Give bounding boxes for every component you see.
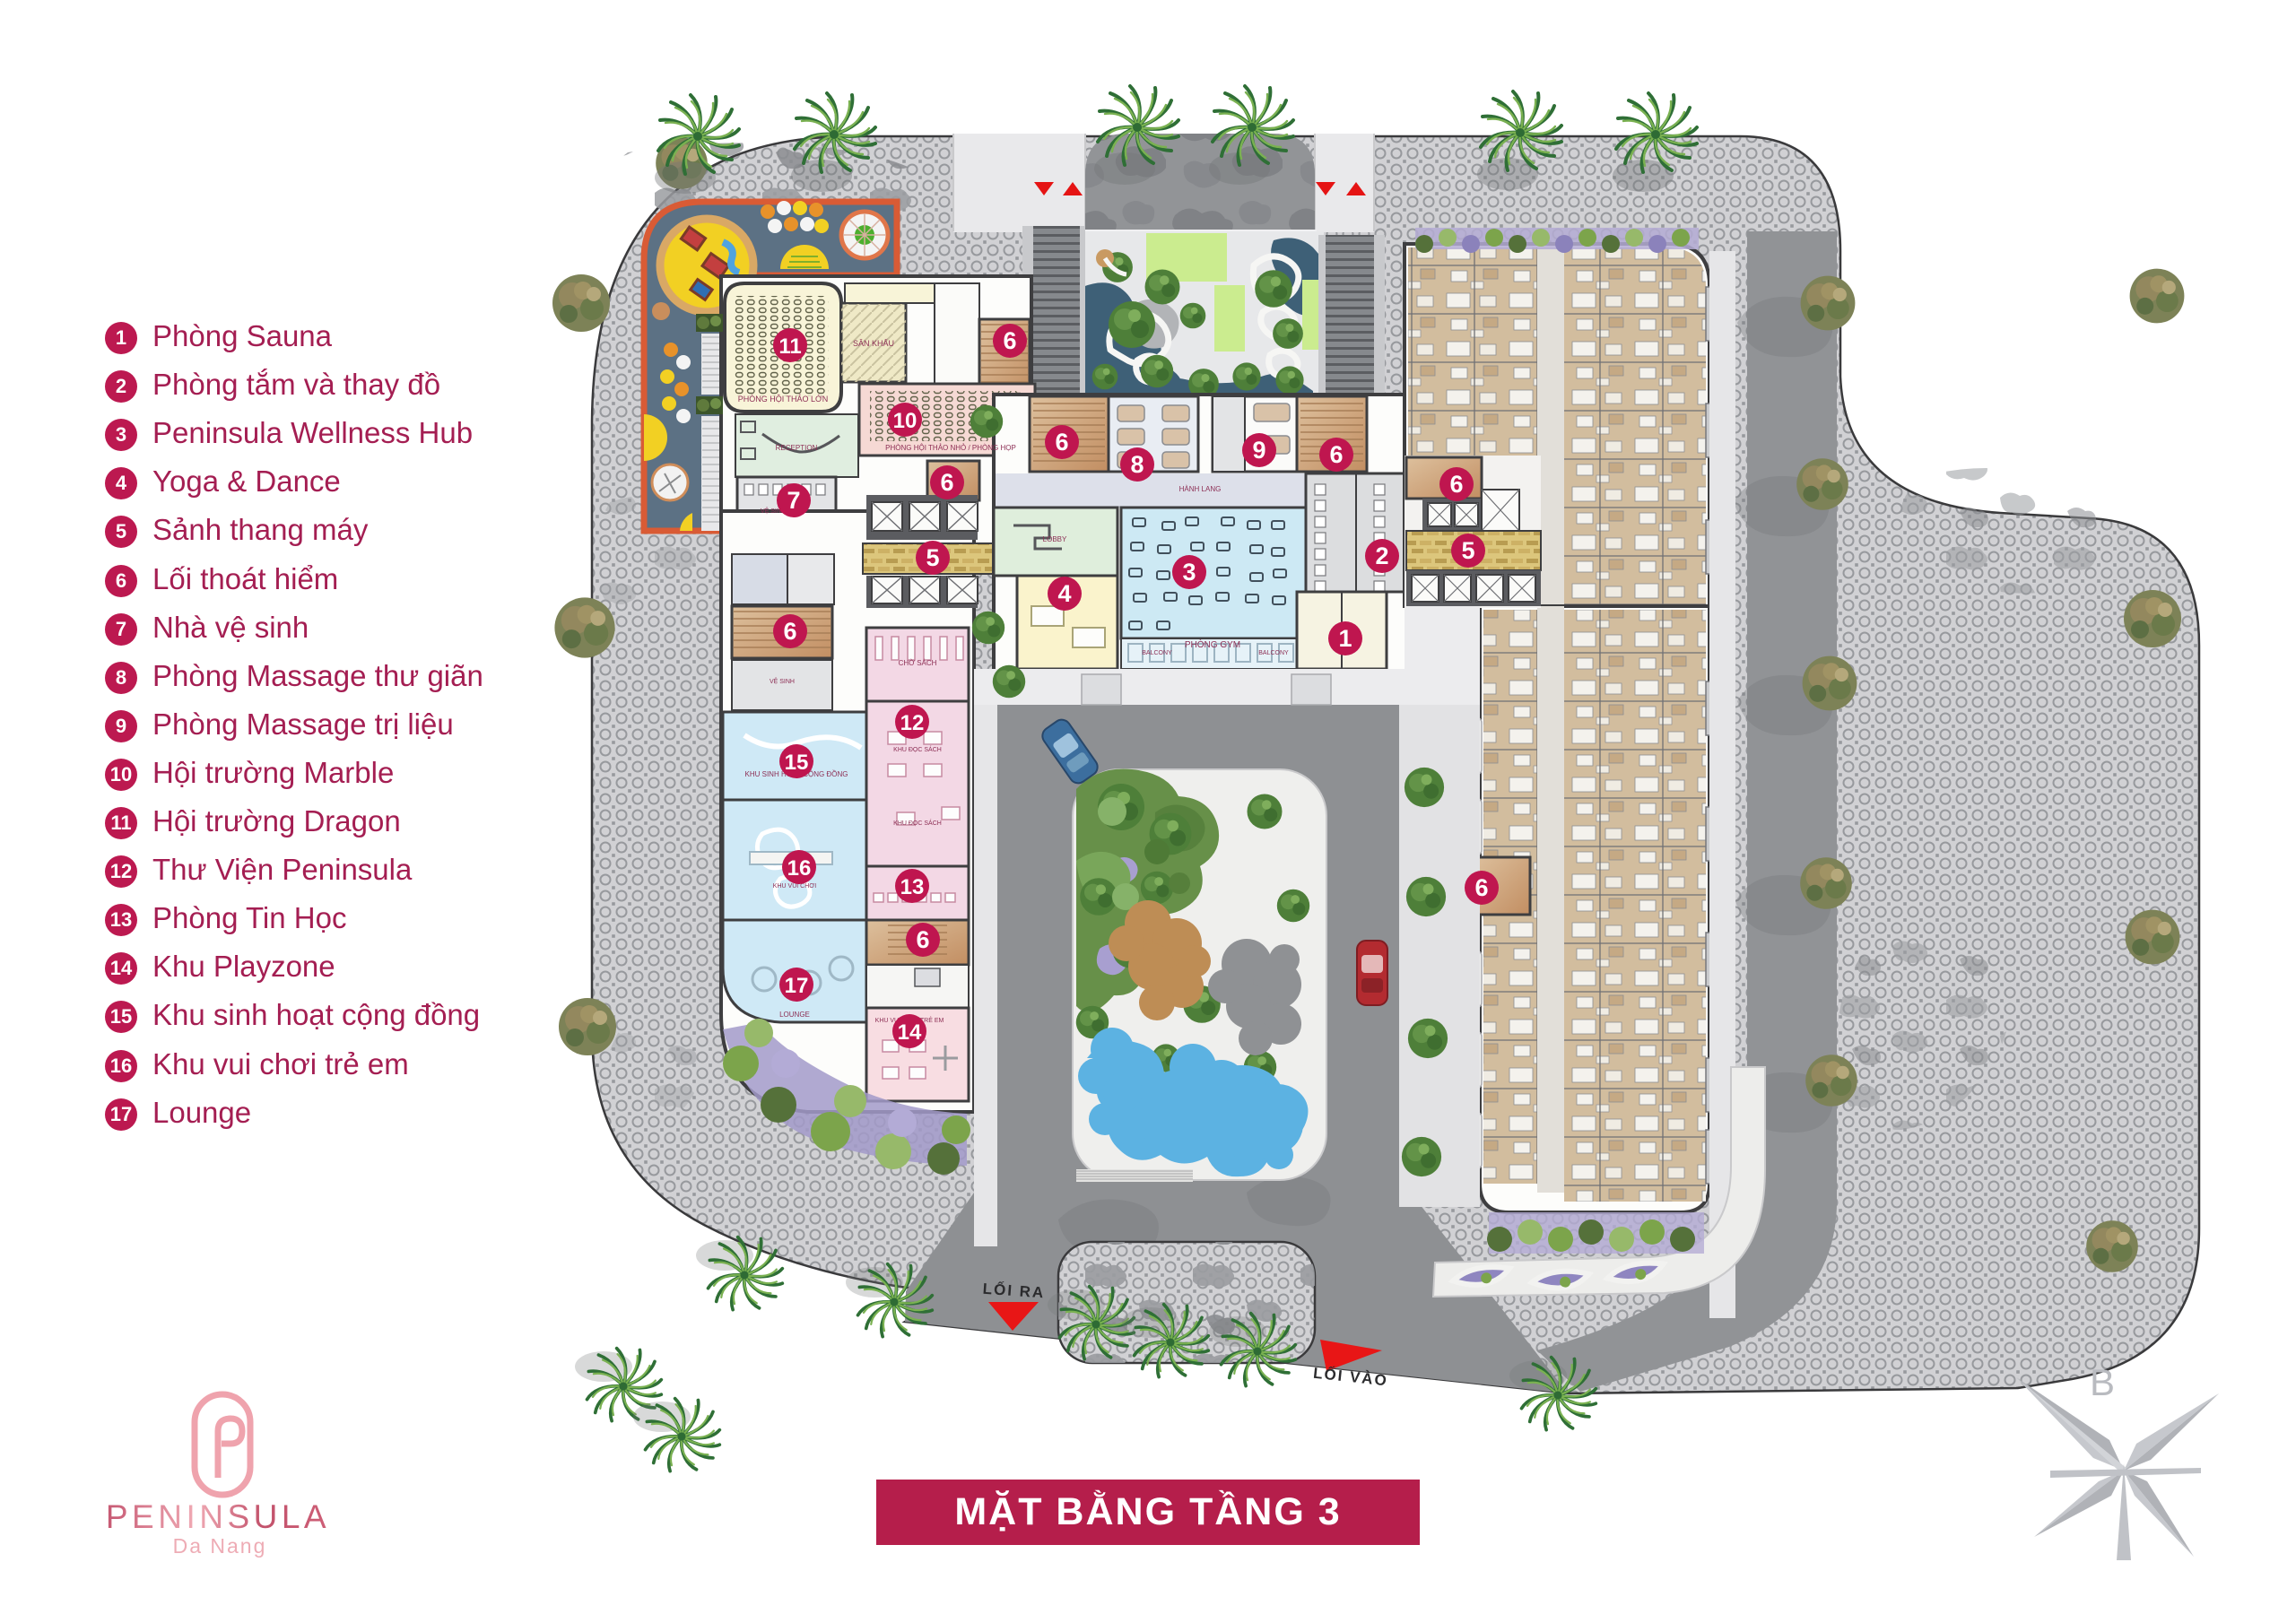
svg-text:13: 13 [900, 875, 925, 899]
svg-text:RECEPTION: RECEPTION [776, 444, 818, 452]
svg-text:BALCONY: BALCONY [1142, 650, 1172, 656]
svg-text:Da Nang: Da Nang [173, 1534, 267, 1558]
svg-text:CHỜ SÁCH: CHỜ SÁCH [899, 659, 937, 667]
svg-text:6: 6 [1449, 471, 1463, 498]
svg-text:BALCONY: BALCONY [1258, 650, 1289, 656]
svg-text:6: 6 [1003, 327, 1016, 354]
svg-text:7: 7 [787, 487, 800, 514]
svg-text:PHÒNG HỘI THẢO NHỎ / PHÒNG HỌP: PHÒNG HỘI THẢO NHỎ / PHÒNG HỌP [885, 444, 1016, 452]
svg-text:PHÒNG GYM: PHÒNG GYM [1185, 638, 1240, 650]
svg-text:6: 6 [940, 469, 953, 496]
svg-text:14: 14 [898, 1020, 922, 1045]
svg-text:6: 6 [1329, 441, 1343, 468]
svg-text:SÂN KHẤU: SÂN KHẤU [853, 339, 894, 348]
svg-text:LOBBY: LOBBY [1043, 535, 1067, 543]
svg-text:15: 15 [785, 751, 809, 775]
svg-text:2: 2 [1375, 542, 1388, 569]
svg-text:4: 4 [1057, 580, 1071, 607]
svg-text:B: B [2090, 1361, 2115, 1403]
svg-text:HÀNH LANG: HÀNH LANG [1179, 485, 1222, 493]
svg-text:17: 17 [785, 974, 809, 998]
svg-text:LOUNGE: LOUNGE [779, 1011, 810, 1019]
svg-text:KHU VUI CHƠI: KHU VUI CHƠI [773, 883, 816, 890]
svg-text:1: 1 [1338, 625, 1352, 652]
svg-text:PHÒNG HỘI THẢO LỚN: PHÒNG HỘI THẢO LỚN [738, 394, 829, 404]
svg-text:10: 10 [893, 409, 918, 433]
svg-text:5: 5 [1461, 537, 1474, 564]
svg-text:12: 12 [900, 711, 925, 735]
svg-text:6: 6 [783, 618, 796, 645]
svg-text:16: 16 [787, 856, 812, 881]
svg-text:KHU ĐỌC SÁCH: KHU ĐỌC SÁCH [893, 819, 942, 827]
svg-text:6: 6 [1055, 429, 1068, 456]
svg-text:11: 11 [778, 334, 801, 359]
svg-text:PENINSULA: PENINSULA [106, 1498, 330, 1535]
svg-text:8: 8 [1130, 451, 1144, 478]
svg-text:6: 6 [1474, 874, 1488, 901]
svg-text:3: 3 [1182, 559, 1196, 586]
svg-text:6: 6 [916, 926, 929, 953]
svg-text:5: 5 [926, 544, 939, 571]
svg-text:9: 9 [1252, 437, 1265, 464]
svg-text:VỆ SINH: VỆ SINH [770, 677, 795, 685]
svg-text:KHU ĐỌC SÁCH: KHU ĐỌC SÁCH [893, 745, 942, 753]
